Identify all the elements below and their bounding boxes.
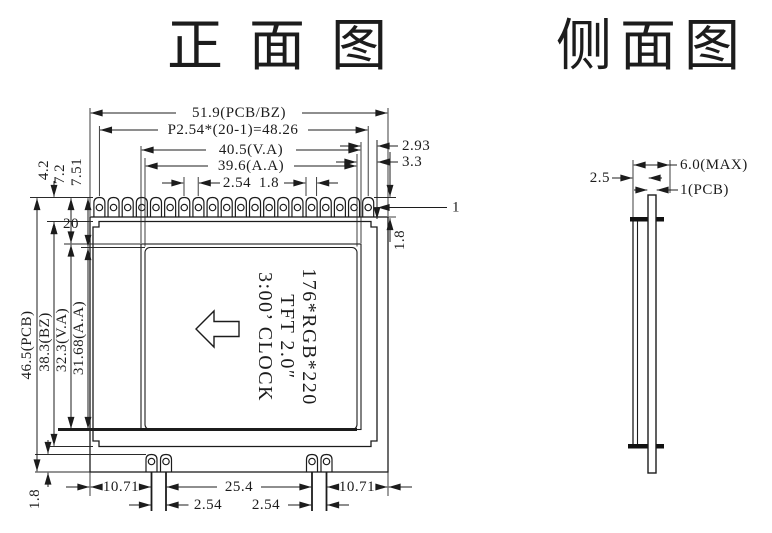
active-area-outline — [145, 248, 357, 430]
viewing-area-outline — [141, 244, 361, 430]
dim-bottom-offset-right: 10.71 — [339, 479, 375, 495]
dim-pin-last: 20 — [63, 216, 79, 232]
display-type-text: TFT 2.0″ — [276, 294, 298, 380]
dim-side-pcb-thickness: 1(PCB) — [680, 182, 729, 198]
dimension-labels: 51.9(PCB/BZ) P2.54*(20-1)=48.26 40.5(V.A… — [19, 105, 748, 513]
dim-pad-width: 1.8 — [259, 175, 279, 191]
dim-width-aa: 39.6(A.A) — [218, 158, 284, 174]
dim-height-va: 32.3(V.A) — [54, 308, 70, 372]
dim-width-va: 40.5(V.A) — [219, 142, 283, 158]
side-pcb-bar — [648, 195, 656, 473]
dim-pin-row-height: 1.8 — [392, 230, 408, 250]
display-resolution-text: 176*RGB*220 — [298, 268, 320, 406]
dim-bottom-margin: 1.8 — [27, 489, 43, 509]
display-label: 176*RGB*220 TFT 2.0″ 3:00’ CLOCK — [254, 268, 320, 406]
front-view-body — [58, 217, 388, 472]
dim-pin-pitch: 2.54 — [223, 175, 251, 191]
lcd-module-drawing: 正面图 侧面图 176*RGB*220 TFT 2.0″ 3:00’ CLOCK — [0, 0, 772, 533]
dim-height-aa: 31.68(A.A) — [71, 301, 87, 375]
front-view-title: 正面图 — [167, 16, 413, 78]
side-top-flange — [630, 217, 664, 222]
dim-top-margin-bz: 4.2 — [36, 160, 52, 180]
dim-side-offset: 2.5 — [590, 170, 610, 186]
dim-margin-aa-right: 3.3 — [402, 154, 422, 170]
dim-pitch-total: P2.54*(20-1)=48.26 — [168, 122, 299, 138]
dim-bottom-pitch-left: 2.54 — [194, 497, 222, 513]
dim-width-total: 51.9(PCB/BZ) — [192, 105, 286, 121]
side-view-title: 侧面图 — [556, 16, 748, 78]
dim-top-margin-va: 7.2 — [52, 164, 68, 184]
pcb-outline — [90, 217, 388, 472]
dim-pin-first: 1 — [452, 200, 460, 216]
dim-bottom-offset-left: 10.71 — [103, 479, 139, 495]
dim-side-total-thickness: 6.0(MAX) — [680, 157, 748, 173]
display-clock-text: 3:00’ CLOCK — [254, 272, 276, 402]
side-view-body — [628, 195, 664, 473]
viewing-direction-arrow-icon — [196, 311, 239, 347]
technical-drawing: 正面图 侧面图 176*RGB*220 TFT 2.0″ 3:00’ CLOCK — [0, 0, 772, 533]
dim-height-bz: 38.3(BZ) — [37, 312, 53, 371]
side-bottom-flange — [628, 444, 664, 449]
dim-height-pcb: 46.5(PCB) — [19, 310, 35, 379]
dim-bottom-pitch-right: 2.54 — [252, 497, 280, 513]
dim-top-margin-aa: 7.51 — [69, 158, 85, 186]
dim-bottom-span-center: 25.4 — [225, 479, 253, 495]
dim-margin-va-right: 2.93 — [402, 138, 430, 154]
top-pin-row — [94, 198, 374, 218]
